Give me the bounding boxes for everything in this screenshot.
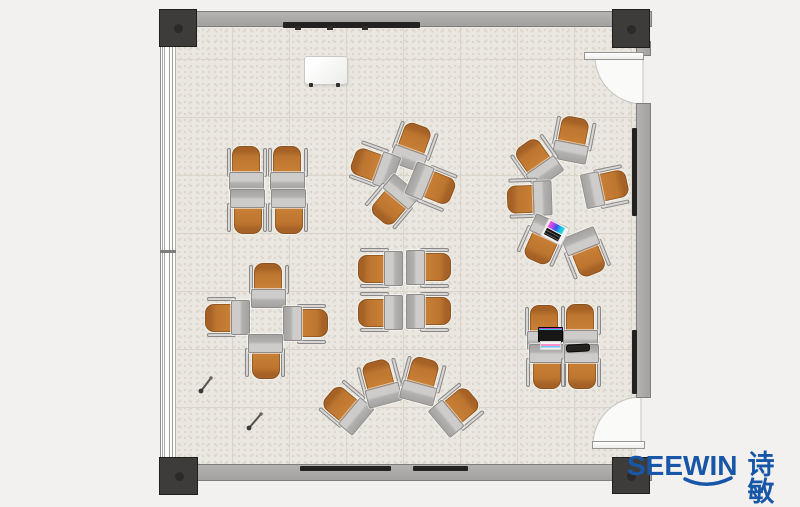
desk-top (384, 295, 403, 330)
whiteboard-bracket (362, 26, 368, 30)
chair-seat (565, 303, 595, 333)
desk-chair-unit (269, 145, 307, 193)
desk-chair-unit (357, 293, 405, 331)
desk-top (230, 189, 265, 208)
desk-chair-unit (204, 298, 252, 336)
column-bottom-left (159, 457, 198, 495)
chair-seat (532, 360, 562, 390)
desk-chair-unit (269, 187, 307, 235)
desk-chair-unit (404, 249, 452, 287)
chair-seat (272, 145, 302, 175)
desk-chair-unit (250, 262, 288, 310)
chair-armrest-right (420, 284, 449, 288)
chair-seat (567, 360, 597, 390)
desk-chair-unit (404, 293, 452, 331)
desk-top (271, 189, 306, 208)
laptop-colorful-strip (540, 341, 561, 350)
desk-chair-unit (228, 145, 266, 193)
whiteboard-bracket (327, 26, 333, 30)
desk-chair-unit (357, 249, 405, 287)
chair-seat (422, 252, 452, 282)
desk-top (231, 300, 250, 335)
desk-top (406, 294, 425, 329)
desk-chair-unit (228, 187, 266, 235)
door-bottom-right-leaf (592, 441, 645, 449)
laptop-open-panel (538, 327, 563, 342)
tablet-on-desk (566, 343, 590, 352)
door-top-right-leaf (584, 52, 644, 60)
chair-seat (357, 254, 387, 284)
whiteboard-caster (309, 83, 313, 87)
column-top-left (159, 9, 197, 47)
desk-top (384, 251, 403, 286)
chair-seat (233, 205, 263, 235)
desk-chair-unit (246, 332, 284, 380)
wall-bottom (159, 464, 652, 481)
desk-top (283, 306, 302, 341)
chair-seat (231, 145, 261, 175)
seewin-wordmark: SEEWIN (627, 450, 737, 481)
window-mullion (160, 250, 176, 253)
chair-armrest-right (297, 340, 326, 344)
mobile-whiteboard (304, 56, 348, 85)
chair-seat (253, 262, 283, 292)
whiteboard-bracket (295, 26, 301, 30)
window-wall-left (160, 46, 176, 458)
chair-armrest-right (420, 328, 449, 332)
whiteboard-bottom-wall-2 (413, 466, 468, 471)
column-dot (174, 24, 183, 33)
column-top-right (612, 9, 650, 48)
seewin-chinese-name: 诗敏 (747, 452, 800, 506)
floor-plan-canvas: SEEWIN 诗敏 (0, 0, 800, 507)
chair-seat (299, 308, 329, 338)
board-right-wall-1 (632, 128, 637, 216)
column-dot (175, 472, 184, 481)
whiteboard-bottom-wall-1 (300, 466, 391, 471)
desk-top (248, 334, 283, 353)
desk-chair-unit (281, 305, 329, 343)
board-right-wall-2 (632, 330, 637, 394)
whiteboard-caster (336, 83, 340, 87)
chair-seat (357, 298, 387, 328)
chair-seat (251, 350, 281, 380)
chair-seat (204, 303, 234, 333)
desk-chair-unit (505, 178, 554, 218)
wall-right-main (636, 103, 651, 398)
seewin-logo: SEEWIN 诗敏 (627, 452, 800, 506)
chair-seat (274, 205, 304, 235)
chair-seat (422, 296, 452, 326)
whiteboard-top-wall (283, 22, 420, 28)
desk-top (406, 250, 425, 285)
column-dot (627, 25, 636, 34)
